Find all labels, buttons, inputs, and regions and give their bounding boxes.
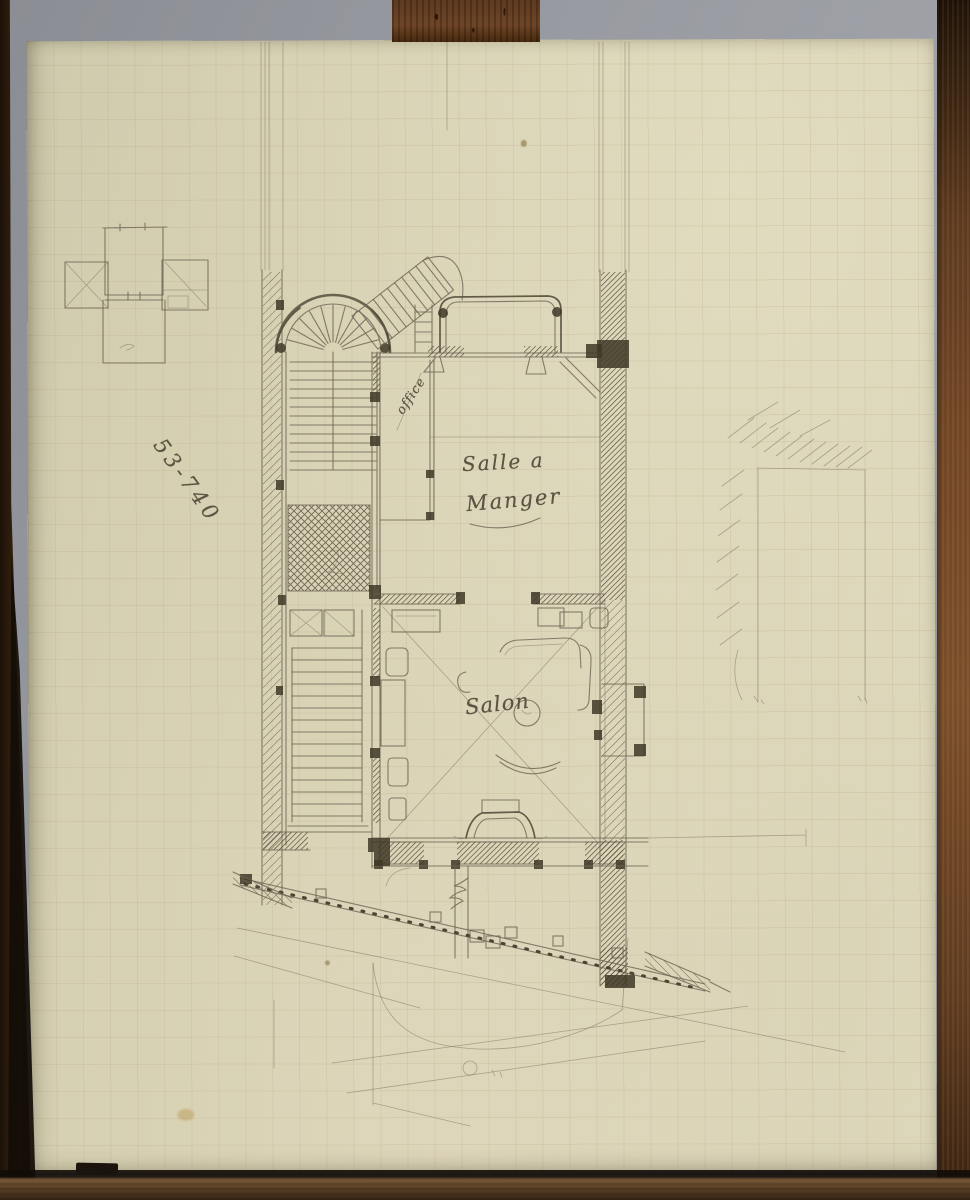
middle-wall [369,352,381,868]
right-party-wall [597,270,635,988]
entry-and-fence [233,866,730,992]
easel-top-post [392,0,540,42]
label-salle-a-manger-line1: Salle a [461,448,545,476]
right-opening-sketch [716,402,872,704]
floor-plan-drawing [0,0,970,1200]
photograph-of-floor-plan-sketch: Salle a Manger Salon office 53-740 [0,0,970,1200]
easel-bottom-ledge [0,1170,970,1200]
thumbnail-plan-sketch [65,223,208,363]
easel-right-rail [937,0,970,1200]
plan-bottom-left-wall [262,832,390,866]
main-stair-run [288,610,368,826]
easel-clip-shadow [76,1163,118,1176]
left-party-wall [262,270,286,905]
partition-wall [374,592,605,604]
light-court [288,505,370,591]
